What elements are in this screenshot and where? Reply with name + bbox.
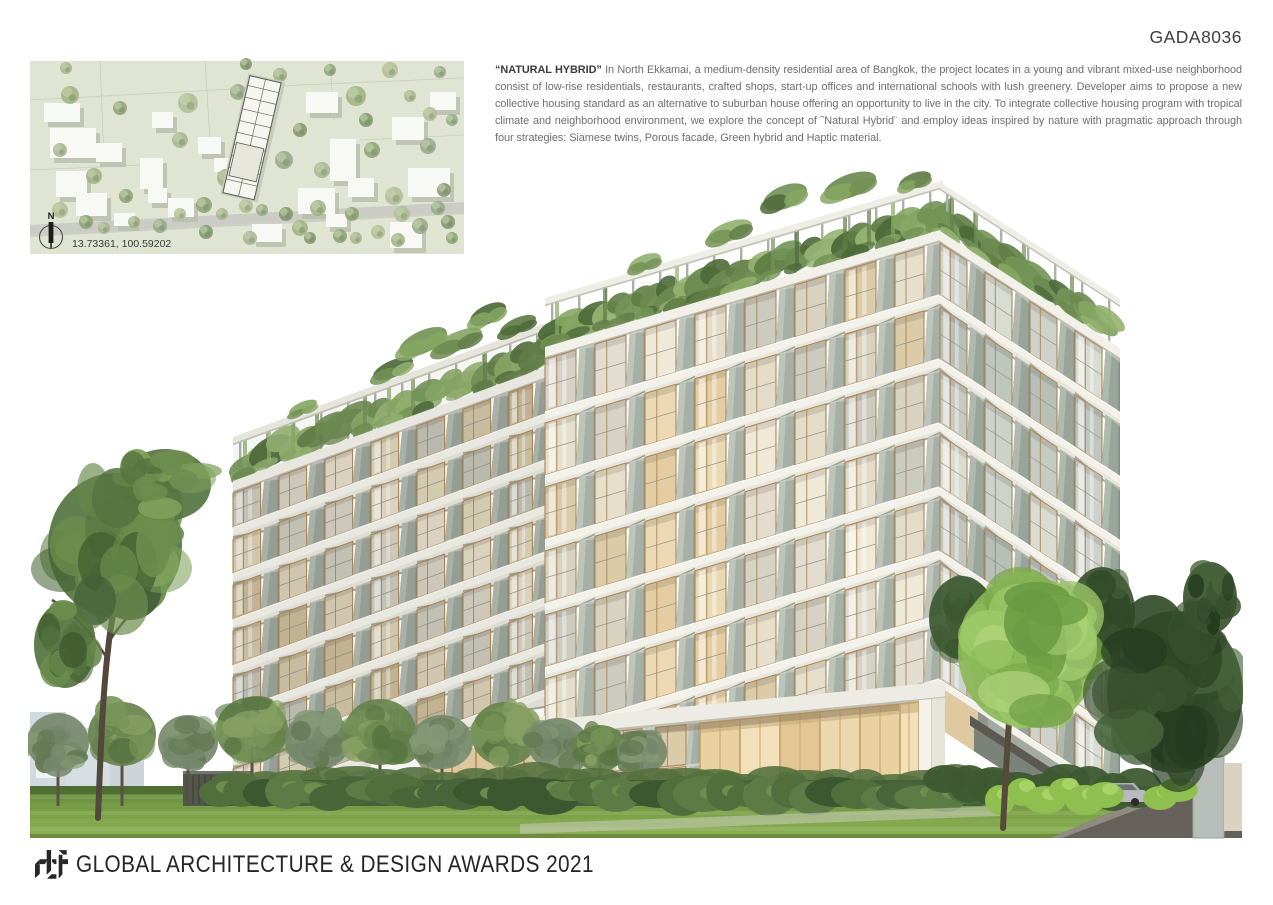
svg-text:N: N	[48, 211, 55, 222]
